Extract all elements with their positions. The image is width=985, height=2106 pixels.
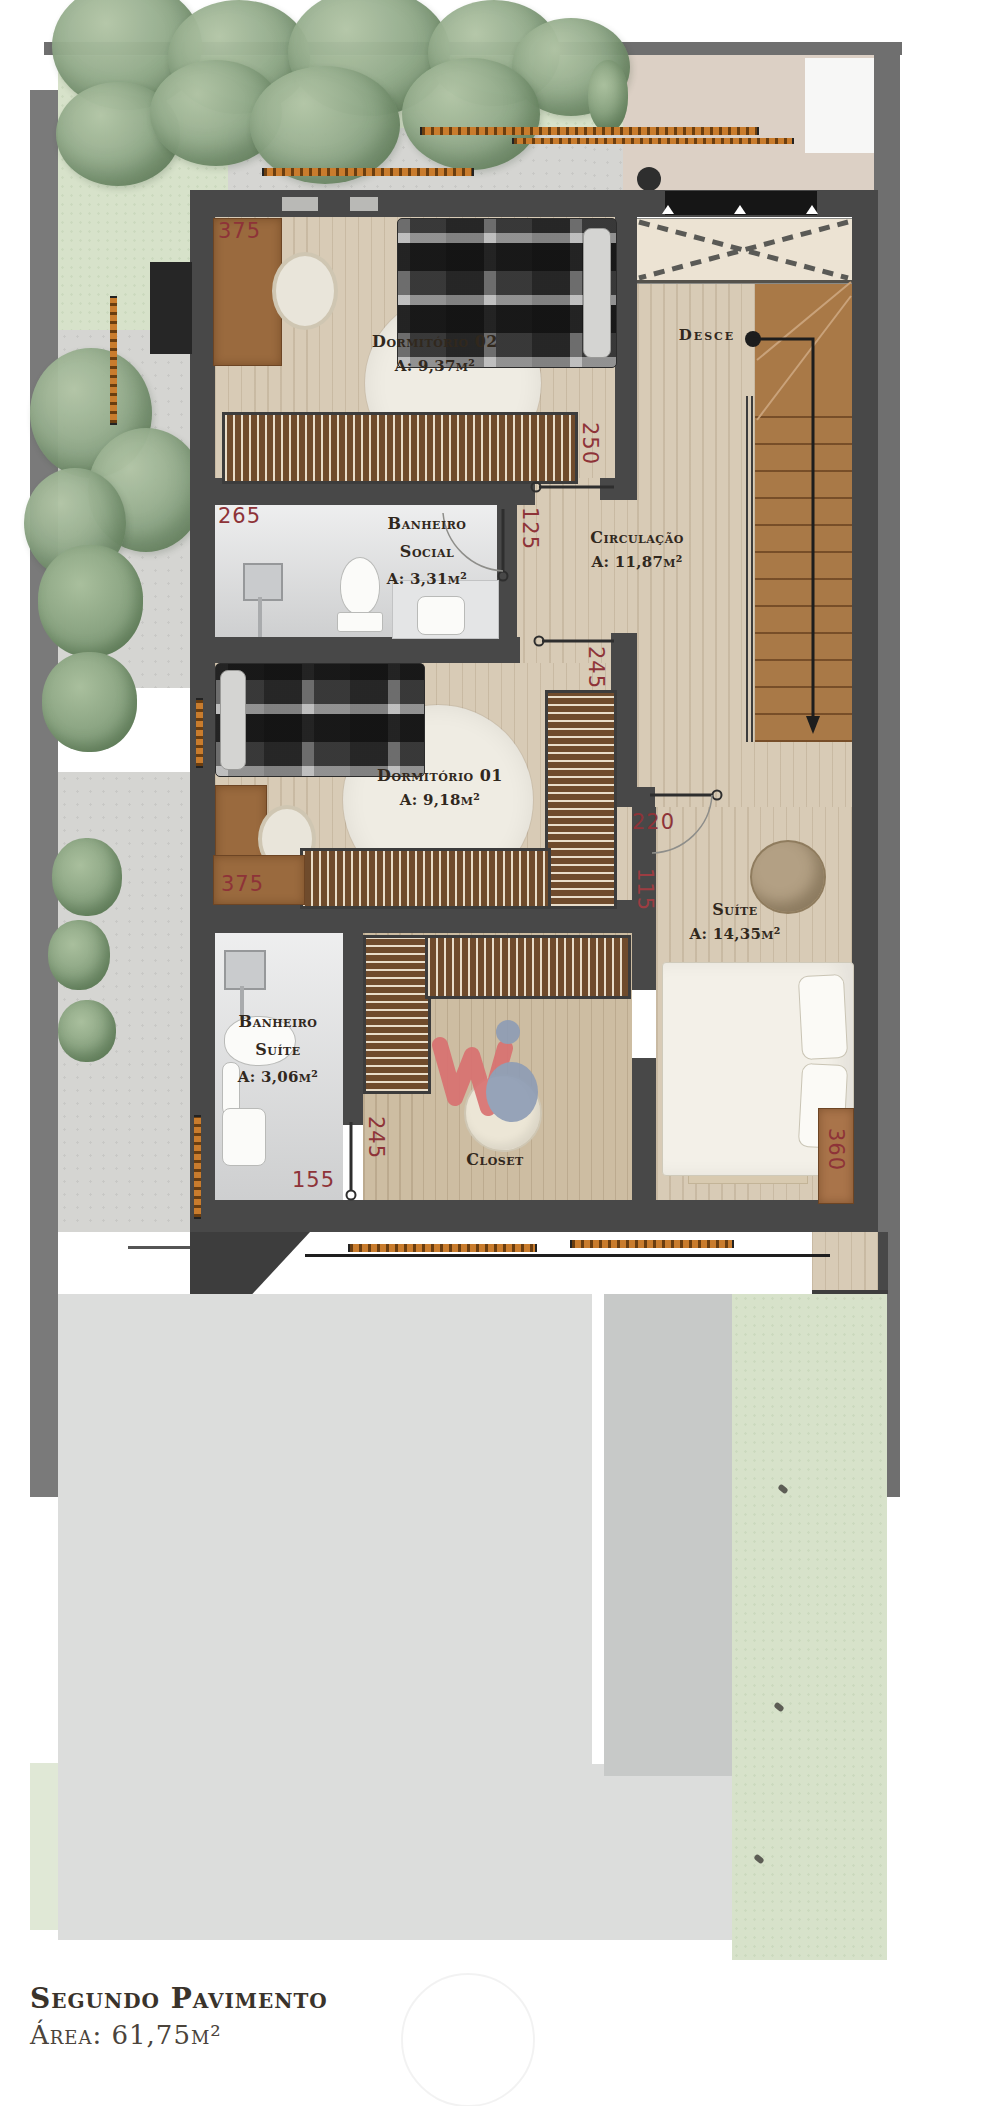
window-tape xyxy=(262,168,474,176)
dorm02-wardrobe xyxy=(222,412,578,484)
dorm01-name: Dormitório 01 xyxy=(350,768,530,784)
suite-area: A: 14,35m² xyxy=(665,927,805,942)
shower-head-icon xyxy=(243,563,283,601)
dim-dorm01-door: 245 xyxy=(585,646,606,689)
bush xyxy=(52,838,122,916)
dorm01-wardrobe-side xyxy=(545,690,617,909)
wall-bath-social-bottom xyxy=(190,637,520,663)
label-desce: Desce xyxy=(668,328,746,343)
wall-suite-closet-lower xyxy=(632,1058,656,1202)
wall-bottom-chamfer xyxy=(190,1232,310,1294)
floor-plan-page: Dormitório 02 A: 9,37m² Banheiro Social … xyxy=(0,0,985,2106)
label-dorm01: Dormitório 01 A: 9,18m² xyxy=(350,768,530,808)
dim-banheiro-suite-width: 155 xyxy=(292,1170,335,1191)
shower-head-icon-suite xyxy=(224,950,266,990)
window-tape xyxy=(194,1115,201,1219)
window-tape xyxy=(512,138,794,144)
roof-divider xyxy=(592,1294,604,1764)
floor-area: Área: 61,75m² xyxy=(30,2020,222,2050)
dorm01-pillow xyxy=(220,670,246,770)
dorm01-area: A: 9,18m² xyxy=(350,793,530,808)
dim-hall-jog: 125 xyxy=(519,507,540,550)
label-banheiro-social: Banheiro Social A: 3,31m² xyxy=(362,516,492,587)
circulacao-area: A: 11,87m² xyxy=(552,555,722,570)
stair-void-edge xyxy=(633,280,852,283)
dim-suite-wall: 115 xyxy=(634,868,655,911)
wall-dorm02-circ-foot xyxy=(600,478,637,500)
dim-suite-depth: 360 xyxy=(825,1128,846,1171)
facade-line xyxy=(305,1254,830,1257)
dorm01-bed xyxy=(215,663,425,777)
closet-name: Closet xyxy=(466,1150,524,1169)
dim-dorm02-width: 375 xyxy=(218,221,261,242)
banheiro-social-name1: Banheiro xyxy=(362,516,492,532)
wall-top-window xyxy=(350,197,378,211)
lintel-marker xyxy=(806,205,818,214)
stair-treads xyxy=(755,408,852,742)
wall-dorm02-circ xyxy=(615,217,637,485)
site-column xyxy=(637,167,661,191)
wall-bathsuite-closet xyxy=(343,933,363,1125)
banheiro-suite-name2: Suíte xyxy=(216,1042,340,1058)
balcony-edge xyxy=(812,1290,888,1294)
dorm02-pillow xyxy=(583,228,611,358)
sink-social xyxy=(417,596,465,635)
closet-shelf-left xyxy=(363,935,431,1094)
stair-void xyxy=(633,218,854,284)
banheiro-suite-name1: Banheiro xyxy=(216,1014,340,1030)
dim-circ-top: 250 xyxy=(579,422,600,465)
label-dorm02: Dormitório 02 A: 9,37m² xyxy=(340,334,530,374)
label-suite: Suíte A: 14,35m² xyxy=(665,902,805,942)
dorm02-chair xyxy=(272,252,338,330)
bush xyxy=(48,920,110,990)
bush xyxy=(58,1000,116,1062)
dorm02-name: Dormitório 02 xyxy=(340,334,530,350)
window-tape xyxy=(570,1240,734,1248)
yard-grass-left-strip xyxy=(30,1763,58,1930)
bush xyxy=(42,652,137,752)
banheiro-suite-area: A: 3,06m² xyxy=(216,1070,340,1085)
wall-bottom xyxy=(190,1200,878,1232)
dorm01-wardrobe-foot xyxy=(300,848,551,909)
wall-top-window xyxy=(282,197,318,211)
tree-canopy xyxy=(402,58,540,170)
desce-label: Desce xyxy=(679,326,735,344)
circulacao-name: Circulação xyxy=(552,530,722,546)
dorm02-area: A: 9,37m² xyxy=(340,359,530,374)
dim-banheiro-social-width: 265 xyxy=(218,506,261,527)
suite-name: Suíte xyxy=(665,902,805,918)
floor-title: Segundo Pavimento xyxy=(30,1982,328,2015)
window-tape xyxy=(420,127,759,135)
window-tape xyxy=(196,698,203,768)
wall-right xyxy=(852,190,878,1232)
bush xyxy=(588,60,628,132)
tree-canopy xyxy=(250,66,400,184)
balcony-wall xyxy=(878,1232,888,1290)
window-tape xyxy=(348,1244,537,1252)
sink-suite xyxy=(222,1108,266,1166)
wall-left-pier xyxy=(150,262,192,354)
toilet-social-tank xyxy=(337,612,383,632)
lintel-marker xyxy=(734,205,746,214)
wall-circ-left-foot xyxy=(611,787,655,807)
closet-shelf-top xyxy=(425,935,631,999)
suite-pillow xyxy=(798,974,848,1060)
lower-roof-block xyxy=(604,1294,732,1776)
closet-pouf xyxy=(464,1074,542,1152)
label-circulacao: Circulação A: 11,87m² xyxy=(552,530,722,570)
banheiro-social-area: A: 3,31m² xyxy=(362,572,492,587)
neighbour-building-white-roof xyxy=(805,58,875,153)
window-tape xyxy=(110,296,117,425)
dim-suite-door: 220 xyxy=(632,812,675,833)
dim-closet-door: 245 xyxy=(365,1116,386,1159)
label-banheiro-suite: Banheiro Suíte A: 3,06m² xyxy=(216,1014,340,1085)
label-closet: Closet xyxy=(440,1152,550,1168)
dim-dorm01-width: 375 xyxy=(221,874,264,895)
wall-bath-social-right xyxy=(497,505,517,640)
bush xyxy=(38,545,143,657)
balcony-deck xyxy=(812,1232,878,1290)
banheiro-social-name2: Social xyxy=(362,544,492,560)
site-boundary-left xyxy=(30,90,58,1497)
lintel-marker xyxy=(662,205,674,214)
facade-line-short xyxy=(128,1246,190,1249)
shower-stem xyxy=(258,597,262,637)
